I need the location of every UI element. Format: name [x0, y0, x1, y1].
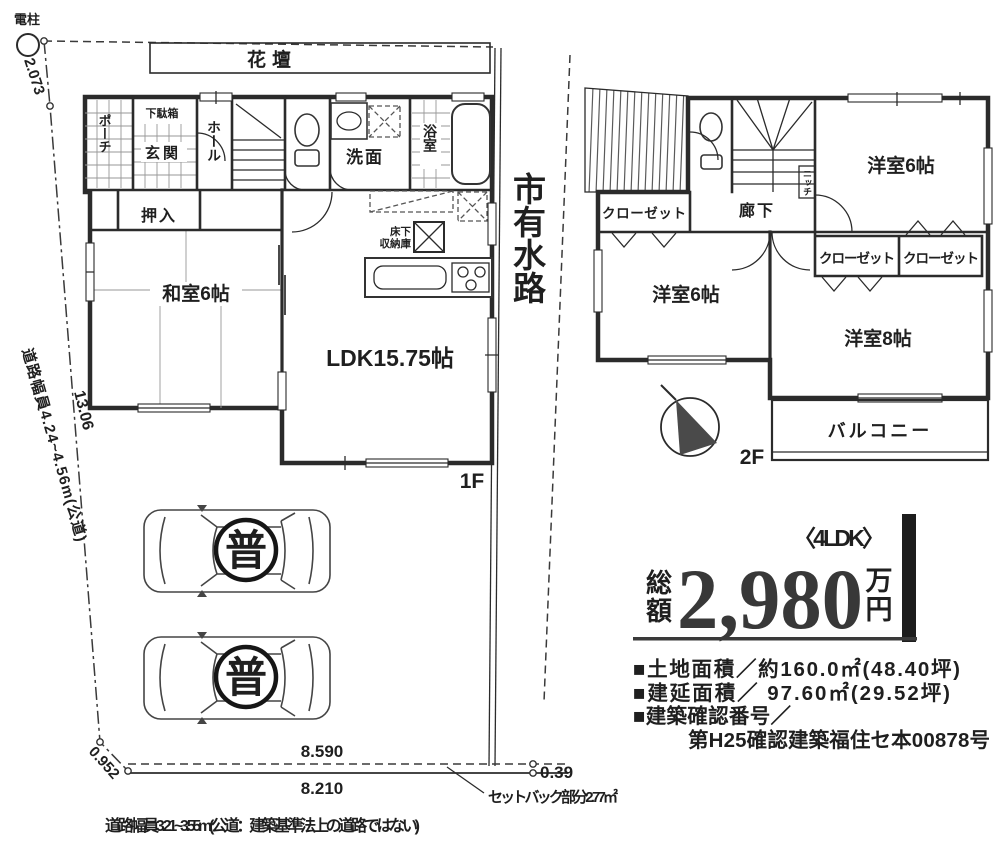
washer-space-icon: [369, 106, 400, 137]
setback-leader-line: [447, 767, 484, 793]
setback-note: セットバック部分2.77㎡: [488, 788, 618, 806]
room-label-bedroom6-lower: 洋室6帖: [652, 283, 720, 306]
room-label-bathroom: 浴室: [422, 123, 438, 152]
counter-dashed-outline: [370, 191, 487, 221]
left-road-note: 道路幅員4.24~4.56m(公道): [18, 346, 90, 543]
floor-label-1f: 1F: [460, 470, 485, 493]
price-prefix-1: 総: [646, 568, 672, 598]
floor-label-2f: 2F: [740, 446, 765, 469]
roof-outline: [585, 88, 688, 192]
balcony: バルコニー: [772, 400, 988, 460]
car-mirror: [197, 717, 207, 724]
price-prefix-2: 額: [646, 596, 672, 626]
roof-hatch: [589, 86, 691, 194]
dim-2073: 2.073: [20, 56, 48, 97]
utility-pole-label: 電柱: [14, 12, 40, 27]
car-1: 普: [144, 505, 330, 597]
washroom-sink-icon: [331, 103, 367, 139]
bottom-road-note: 道路幅員3.21~3.55m(公道：建築基準法上の道路ではない): [105, 816, 420, 835]
house-1f: ポーチ 下駄箱 玄関 ホール 押入 和室6帖 洗面 浴室 床下 収納庫 LDK1…: [85, 91, 499, 493]
kitchen-counter-icon: [365, 258, 492, 297]
room-label-shoe-cabinet: 下駄箱: [146, 106, 179, 120]
compass-icon: [661, 385, 719, 456]
price-unit-2: 円: [866, 595, 893, 625]
room-label-balcony: バルコニー: [828, 421, 933, 441]
price-unit-1: 万: [866, 566, 893, 596]
room-label-oshiire: 押入: [141, 206, 177, 225]
house-2f: ニッチ バルコニー 洋室6帖 洋室6帖 洋室8帖 クローゼット クローゼット: [585, 86, 992, 469]
price-amount: 2,980: [677, 551, 863, 647]
plan-type-label: 〈4LDK〉: [793, 525, 885, 551]
dim-8590: 8.590: [301, 742, 344, 761]
toilet-1f-icon: [285, 114, 319, 190]
car-mirror: [197, 590, 207, 597]
room-label-corridor: 廊下: [739, 201, 775, 220]
detail-land-area: ■土地面積／約160.0㎡(48.40坪): [633, 657, 960, 681]
room-label-porch: ポーチ: [97, 113, 112, 153]
flower-bed-label: 花壇: [247, 48, 297, 71]
car-mirror: [197, 632, 207, 639]
room-label-bedroom6-upper: 洋室6帖: [867, 154, 935, 177]
bathtub-icon: [452, 104, 490, 184]
car-mirror: [197, 505, 207, 512]
room-label-entrance: 玄関: [145, 144, 181, 162]
room-label-underfloor-1: 床下: [390, 225, 411, 238]
floor-plan-canvas: 電柱 2.073 花壇 13.06 道路幅員4.24~4.56m(公道) 0.9…: [0, 0, 1000, 843]
room-label-tatami: 和室6帖: [162, 282, 230, 305]
price-block: 〈4LDK〉 総 額 2,980 万 円: [633, 514, 917, 647]
waterway-far-edge: [544, 55, 570, 702]
dim-8210: 8.210: [301, 779, 344, 798]
tatami-lines: [90, 230, 282, 408]
room-label-niche: ニッチ: [802, 169, 812, 196]
room-label-washroom: 洗面: [346, 147, 384, 167]
detail-building-area: ■建延面積／ 97.60㎡(29.52坪): [633, 681, 950, 705]
dim-039: 0.39: [540, 763, 573, 782]
parking-badge-char: 普: [225, 527, 267, 574]
room-label-hall: ホール: [206, 120, 222, 162]
parking-badge-char: 普: [225, 654, 267, 701]
flower-bed: 花壇: [150, 43, 490, 73]
room-label-closet-b: クローゼット: [819, 250, 895, 266]
stairs-1f: [232, 104, 285, 180]
room-label-bedroom8: 洋室8帖: [844, 327, 912, 350]
floorplan-flyer: 電柱 2.073 花壇 13.06 道路幅員4.24~4.56m(公道) 0.9…: [0, 0, 1000, 843]
utility-pole: 電柱 2.073: [14, 12, 48, 97]
toilet-2f-icon: [690, 113, 722, 169]
room-label-closet-a: クローゼット: [602, 205, 686, 221]
car-2: 普: [144, 632, 330, 724]
waterway-label: 市有水路: [509, 171, 547, 304]
price-underline: [633, 637, 917, 641]
detail-confirmation-label: ■建築確認番号／: [633, 704, 792, 728]
price-accent-bar: [902, 514, 916, 642]
room-label-ldk: LDK15.75帖: [326, 345, 454, 371]
dim-0952: 0.952: [85, 743, 123, 782]
underfloor-storage-icon: [414, 222, 444, 252]
property-details: ■土地面積／約160.0㎡(48.40坪) ■建延面積／ 97.60㎡(29.5…: [633, 657, 990, 752]
room-label-closet-c: クローゼット: [903, 250, 979, 266]
detail-confirmation-number: 第H25確認建築福住セ本00878号: [688, 728, 990, 752]
room-label-underfloor-2: 収納庫: [380, 237, 412, 250]
